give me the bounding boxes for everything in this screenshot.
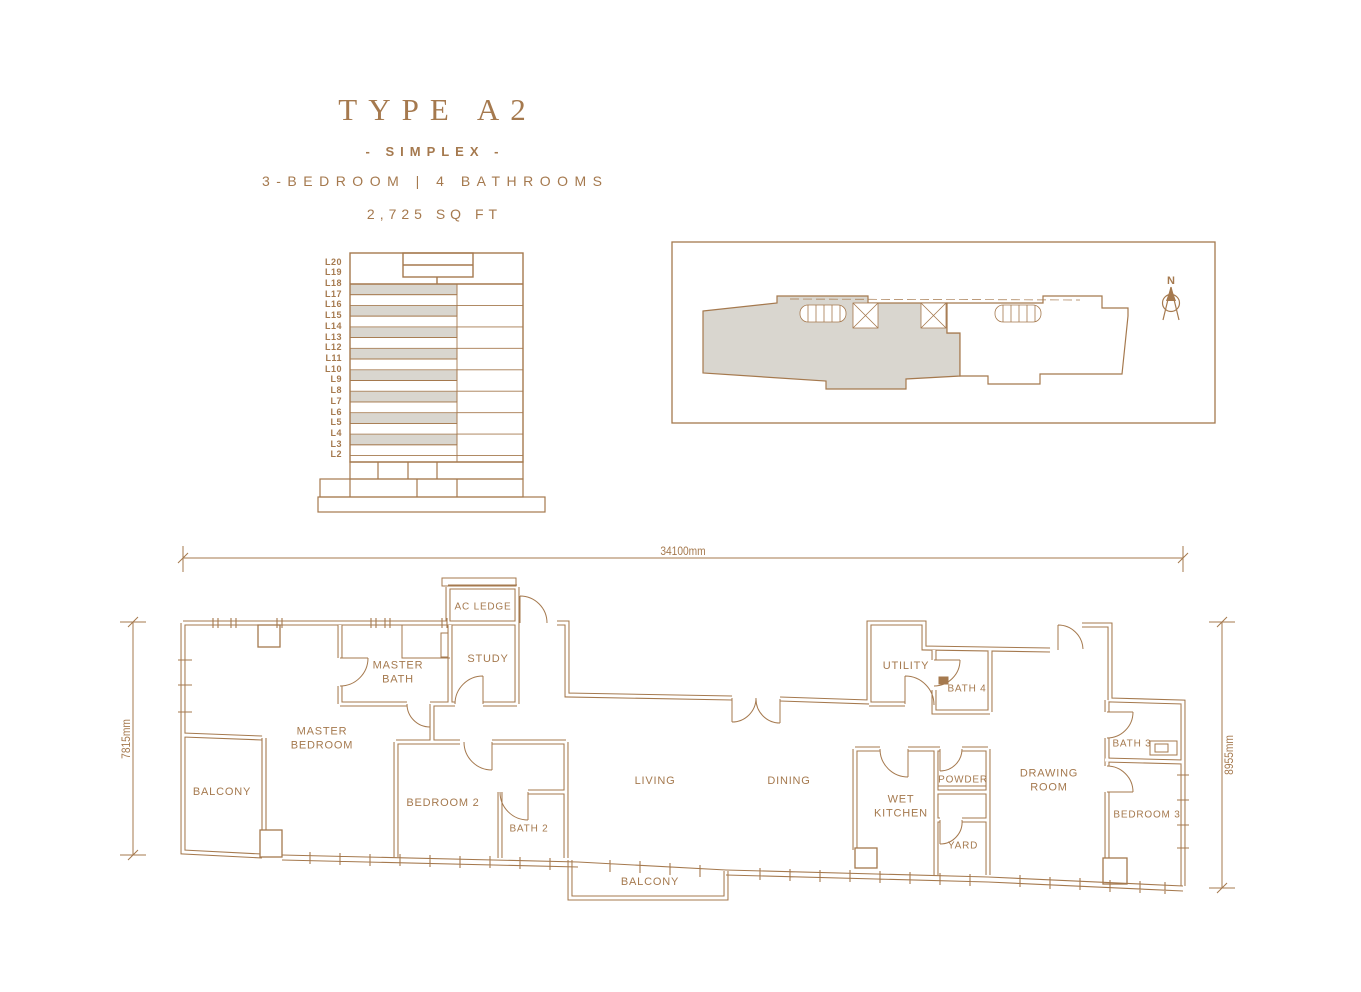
unit-subtitle: - SIMPLEX - [132, 144, 732, 159]
unit-area: 2,725 SQ FT [132, 206, 732, 222]
level-label: L4 [296, 428, 342, 439]
level-label: L6 [296, 407, 342, 418]
room-label-master-bedroom: MASTER BEDROOM [276, 725, 368, 754]
north-arrow-icon [1163, 287, 1180, 320]
level-label: L12 [296, 342, 342, 353]
window-glazing [178, 618, 1189, 894]
room-label-dining: DINING [767, 774, 810, 788]
room-label-bath-2: BATH 2 [509, 823, 548, 836]
level-label: L10 [296, 364, 342, 375]
title-block: TYPE A2 - SIMPLEX - 3-BEDROOM | 4 BATHRO… [132, 0, 732, 222]
north-label: N [1167, 275, 1175, 287]
room-label-living: LIVING [635, 774, 676, 788]
room-label-master-bath: MASTER BATH [362, 659, 434, 688]
level-label: L15 [296, 310, 342, 321]
dimension-lines [120, 546, 1235, 893]
level-label: L18 [296, 278, 342, 289]
level-label: L13 [296, 332, 342, 343]
room-label-bath-3: BATH 3 [1112, 738, 1151, 751]
level-label: L16 [296, 299, 342, 310]
dim-top-label: 34100mm [660, 544, 705, 558]
level-label: L17 [296, 289, 342, 300]
level-label: L8 [296, 385, 342, 396]
level-label: L14 [296, 321, 342, 332]
key-plan [672, 242, 1215, 423]
floorplan-page: TYPE A2 - SIMPLEX - 3-BEDROOM | 4 BATHRO… [0, 0, 1361, 992]
level-label: L11 [296, 353, 342, 364]
level-label: L20 [296, 257, 342, 268]
room-label-utility: UTILITY [883, 659, 930, 673]
level-label: L7 [296, 396, 342, 407]
room-label-bedroom-2: BEDROOM 2 [406, 796, 479, 810]
room-label-powder: POWDER [938, 774, 988, 787]
room-label-balcony-bottom: BALCONY [621, 875, 679, 889]
level-label: L19 [296, 267, 342, 278]
building-elevation [318, 253, 545, 512]
room-label-balcony-left: BALCONY [193, 785, 251, 799]
page-title: TYPE A2 [132, 92, 732, 128]
bedroom-bathroom-spec: 3-BEDROOM | 4 BATHROOMS [132, 173, 732, 189]
level-label: L9 [296, 374, 342, 385]
room-label-ac-ledge: AC LEDGE [455, 601, 512, 614]
room-label-yard: YARD [948, 840, 978, 853]
room-label-bedroom-3: BEDROOM 3 [1113, 809, 1180, 822]
level-label: L5 [296, 417, 342, 428]
level-label: L3 [296, 439, 342, 450]
room-label-drawing-room: DRAWING ROOM [1009, 767, 1089, 796]
dim-left-label: 7815mm [119, 719, 133, 759]
dim-right-label: 8955mm [1222, 735, 1236, 775]
room-label-study: STUDY [467, 652, 508, 666]
level-label: L2 [296, 449, 342, 460]
room-label-wet-kitchen: WET KITCHEN [866, 793, 936, 822]
room-label-bath-4: BATH 4 [947, 683, 986, 696]
elevation-level-labels: L20L19L18L17L16L15L14L13L12L11L10L9L8L7L… [296, 257, 342, 461]
